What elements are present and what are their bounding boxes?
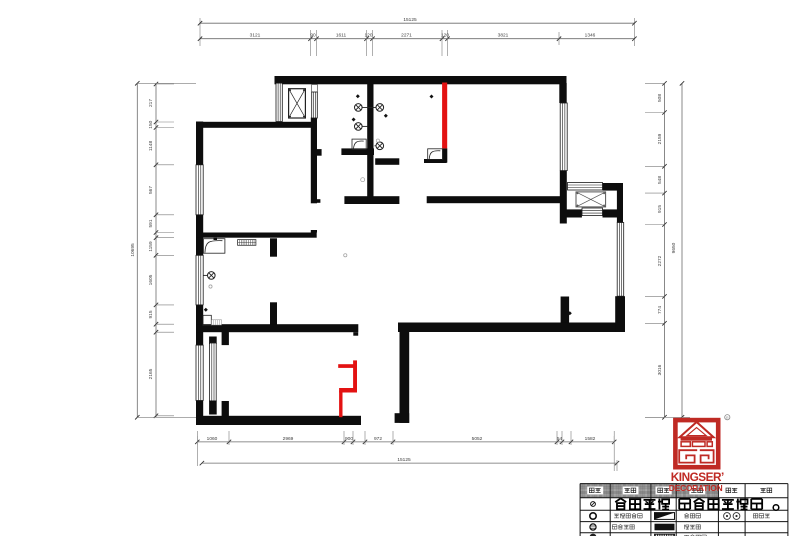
svg-text:900: 900 [345,436,353,442]
svg-text:9650: 9650 [671,242,677,253]
svg-text:1582: 1582 [585,436,596,442]
svg-text:548: 548 [657,176,663,184]
svg-text:972: 972 [374,436,382,442]
svg-text:1148: 1148 [148,141,154,152]
svg-text:15125: 15125 [397,457,411,463]
svg-text:915: 915 [148,310,154,318]
svg-text:R: R [726,416,729,420]
svg-text:120: 120 [364,33,372,39]
svg-text:508: 508 [657,94,663,102]
svg-text:591: 591 [148,219,154,227]
svg-text:567: 567 [148,186,154,194]
svg-text:2271: 2271 [401,33,412,39]
svg-text:217: 217 [148,99,154,107]
svg-text:915: 915 [657,205,663,213]
svg-text:2969: 2969 [283,436,294,442]
svg-text:2272: 2272 [657,255,663,266]
svg-text:3821: 3821 [498,33,509,39]
svg-text:1605: 1605 [148,274,154,285]
svg-text:2165: 2165 [148,368,154,379]
svg-text:10695: 10695 [130,243,136,257]
svg-text:90: 90 [310,33,316,39]
svg-text:KINGSER’: KINGSER’ [671,470,724,484]
svg-text:3016: 3016 [657,364,663,375]
svg-text:3121: 3121 [250,33,261,39]
svg-text:1159: 1159 [148,241,154,252]
svg-text:120: 120 [441,33,449,39]
svg-text:1346: 1346 [585,33,596,39]
svg-text:2159: 2159 [657,133,663,144]
svg-text:15125: 15125 [403,17,417,23]
svg-text:1611: 1611 [336,33,347,39]
svg-text:54: 54 [557,436,563,442]
svg-text:DECORATION: DECORATION [669,483,723,493]
svg-text:5052: 5052 [472,436,483,442]
svg-text:1060: 1060 [207,436,218,442]
svg-text:150: 150 [148,120,154,128]
svg-text:774: 774 [657,306,663,314]
